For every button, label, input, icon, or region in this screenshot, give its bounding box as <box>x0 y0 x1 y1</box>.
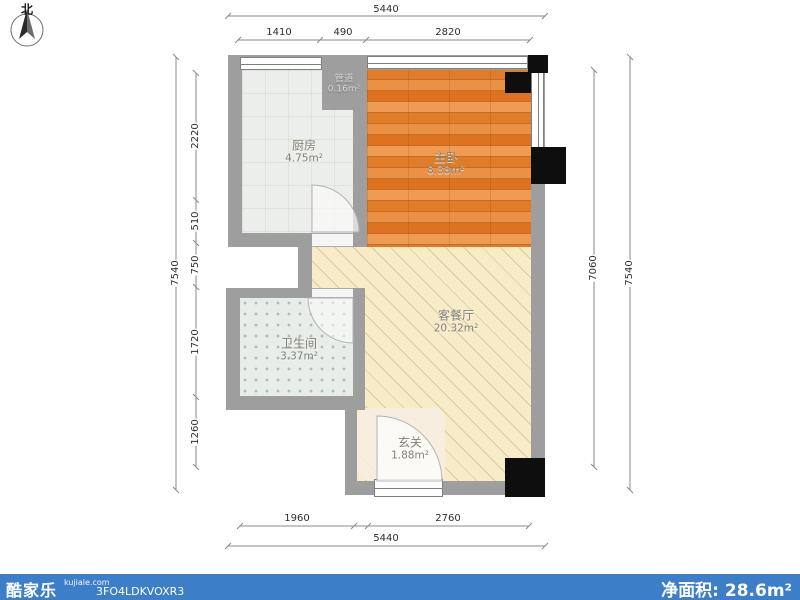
plan-code: 3FO4LDKVOXR3 <box>96 585 184 598</box>
wall-left-kitchen <box>228 55 242 247</box>
column-bottom-right <box>505 458 545 497</box>
dim-top-2820: 2820 <box>434 28 461 38</box>
kitchen-name: 厨房 <box>285 139 323 153</box>
dim-top-490: 490 <box>332 28 353 38</box>
dim-top-outer: 5440 <box>372 5 399 15</box>
room-label-living: 客餐厅 20.32m² <box>434 309 479 336</box>
entry-name: 玄关 <box>391 436 429 450</box>
kitchen-window <box>240 57 322 70</box>
column-right-mid <box>531 147 566 184</box>
kitchen-door-threshold <box>312 233 353 247</box>
room-label-entry: 玄关 1.88m² <box>391 436 429 463</box>
net-area: 净面积: 28.6m² <box>661 576 792 600</box>
dim-right-outer: 7540 <box>625 259 635 286</box>
entry-area: 1.88m² <box>391 450 429 463</box>
wall-bottom-left-seg <box>345 481 374 495</box>
duct-name: 管道 <box>328 74 360 85</box>
bedroom-side-window <box>531 70 544 150</box>
floorplan-canvas: 北 <box>0 0 800 600</box>
column-top-right-corner <box>528 55 548 73</box>
bedroom-name: 主卧 <box>427 151 465 165</box>
dim-top-1410: 1410 <box>265 28 292 38</box>
dim-bottom-1960: 1960 <box>283 514 310 524</box>
footer-bar: 酷家乐 kujiale.com 3FO4LDKVOXR3 净面积: 28.6m² <box>0 574 800 600</box>
kujiale-logo: 酷家乐 <box>6 577 57 600</box>
room-label-bath: 卫生间 3.37m² <box>280 337 318 364</box>
wall-bath-bottom <box>226 396 360 410</box>
bath-name: 卫生间 <box>280 337 318 351</box>
room-label-kitchen: 厨房 4.75m² <box>285 139 323 166</box>
bath-area: 3.37m² <box>280 351 318 364</box>
column-bedroom-top <box>505 72 531 93</box>
living-name: 客餐厅 <box>434 309 479 323</box>
dim-right-inner: 7060 <box>589 254 599 281</box>
entry-door-threshold <box>374 479 443 497</box>
compass-north-label: 北 <box>21 1 33 18</box>
bathroom-door-threshold <box>312 288 353 298</box>
wall-bath-right <box>353 288 365 410</box>
room-label-bedroom: 主卧 8.38m² <box>427 151 465 178</box>
net-area-value: 28.6m² <box>725 581 792 600</box>
living-area: 20.32m² <box>434 323 479 336</box>
dim-left-510: 510 <box>191 210 201 231</box>
bedroom-area: 8.38m² <box>427 165 465 178</box>
duct-area: 0.16m² <box>328 85 360 95</box>
bedroom-window <box>367 56 528 69</box>
dim-left-1720: 1720 <box>191 328 201 355</box>
kitchen-area: 4.75m² <box>285 153 323 166</box>
net-area-label: 净面积: <box>661 581 719 600</box>
dim-left-outer: 7540 <box>171 259 181 286</box>
dim-left-2220: 2220 <box>191 122 201 149</box>
dim-left-750: 750 <box>191 254 201 275</box>
dim-left-1260: 1260 <box>191 418 201 445</box>
room-label-duct: 管道 0.16m² <box>328 74 360 95</box>
dim-bottom-2760: 2760 <box>434 514 461 524</box>
wall-bath-left <box>226 288 240 410</box>
dim-bottom-outer: 5440 <box>372 534 399 544</box>
